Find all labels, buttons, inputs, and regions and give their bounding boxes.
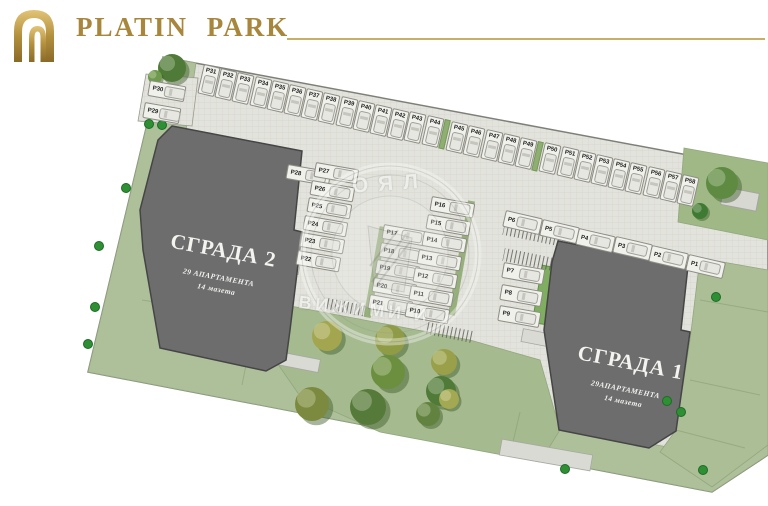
bush-icon	[699, 466, 708, 475]
site-plan-map	[0, 0, 768, 506]
bush-icon	[122, 184, 131, 193]
bush-icon	[91, 303, 100, 312]
gold-divider-line	[287, 38, 765, 40]
platin-park-arch-logo-icon	[8, 4, 64, 62]
platin-park-site-plan-page: P31P32P33P34P35P36P37P38P39P40P41P42P43P…	[0, 0, 768, 506]
brand-title: PLATIN PARK	[76, 12, 289, 43]
bush-icon	[561, 465, 570, 474]
bush-icon	[145, 120, 154, 129]
bush-icon	[712, 293, 721, 302]
bush-icon	[84, 340, 93, 349]
bush-icon	[158, 121, 167, 130]
bush-icon	[95, 242, 104, 251]
header: PLATIN PARK	[0, 0, 768, 60]
